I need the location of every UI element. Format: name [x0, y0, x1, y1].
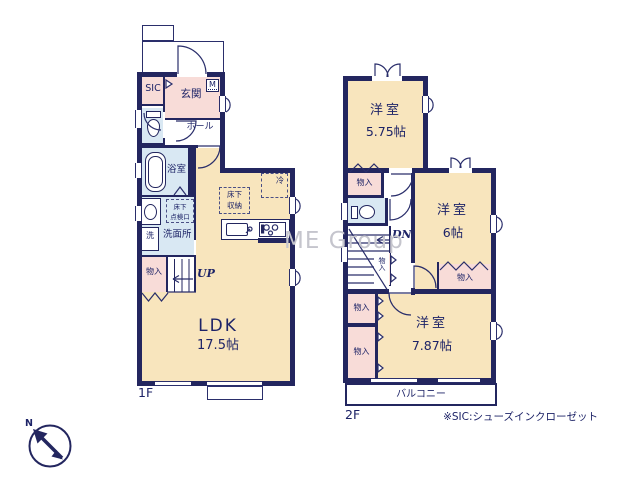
window — [155, 381, 191, 386]
window — [490, 322, 497, 340]
bedroom3-size-label: 7.87帖 — [398, 339, 466, 353]
casement-window — [460, 158, 470, 168]
bedroom2-size-label: 6帖 — [430, 226, 476, 240]
porch-steps — [142, 25, 174, 41]
bedroom3-name-label: 洋室 — [401, 317, 463, 332]
wall — [166, 257, 168, 292]
casement-window — [296, 199, 300, 213]
underfloor-hatch-label: 床下 — [167, 201, 193, 211]
window — [372, 76, 402, 81]
room-bedroom3 — [378, 294, 491, 378]
toilet-icon — [359, 205, 375, 219]
bath-label: 浴室 — [167, 165, 186, 176]
underfloor-hatch-label: 点検口 — [167, 211, 193, 221]
sic-note: ※SIC:シューズインクローゼット — [430, 411, 598, 423]
wall — [343, 195, 384, 198]
door-arc — [390, 199, 411, 220]
wall — [411, 289, 496, 294]
door-gap — [163, 112, 165, 138]
stairs-up-label: UP — [197, 268, 215, 281]
wall — [137, 104, 165, 106]
ldk-name-label: LDK — [196, 317, 240, 337]
wall — [381, 173, 384, 196]
balcony-label: バルコニー — [385, 389, 457, 401]
window — [135, 163, 142, 178]
casement-window — [429, 98, 433, 112]
wall — [343, 223, 388, 226]
toilet-icon — [146, 111, 161, 118]
wall — [375, 293, 378, 378]
window — [422, 96, 429, 113]
stove-icon — [259, 222, 286, 237]
window — [341, 203, 348, 220]
closet-label: 物入 — [378, 257, 386, 271]
fridge-label: 冷 — [276, 176, 284, 185]
underfloor-storage: 床下 収納 — [219, 187, 250, 214]
bathtub-icon — [148, 156, 163, 188]
window — [207, 381, 262, 386]
hall-label: ホール — [178, 122, 222, 132]
wall — [194, 257, 196, 292]
terrace-step — [207, 386, 263, 400]
door-arc — [391, 174, 413, 196]
compass-north-label: N — [25, 419, 33, 430]
toilet-icon — [351, 206, 358, 219]
window — [135, 110, 142, 128]
underfloor-hatch: 床下 点検口 — [166, 199, 194, 223]
entrance-door-gap — [177, 72, 207, 77]
bedroom1-size-label: 5.75帖 — [352, 125, 420, 139]
floor2-label: 2F — [345, 408, 360, 422]
wall — [385, 198, 388, 225]
closet-label: 物入 — [439, 273, 491, 282]
door-gap — [194, 240, 196, 255]
laundry-label: 洗 — [142, 231, 158, 240]
window — [289, 197, 296, 214]
kitchen-sink — [226, 223, 248, 236]
room-ldk — [142, 292, 196, 381]
floor1-label: 1F — [138, 386, 153, 400]
closet-label: 物入 — [348, 178, 381, 187]
wall — [188, 148, 196, 197]
casement-window — [451, 158, 461, 168]
window — [490, 215, 497, 233]
ldk-size-label: 17.5帖 — [188, 339, 248, 354]
fridge-space: 冷 — [261, 173, 288, 198]
closet-label: 物入 — [348, 347, 375, 356]
door-mark — [391, 256, 396, 282]
window — [449, 168, 472, 173]
bedroom1-name-label: 洋室 — [355, 104, 417, 119]
sic-label: SIC — [143, 84, 163, 95]
closet-label: 物入 — [348, 303, 375, 312]
casement-window — [226, 98, 230, 112]
window — [219, 96, 226, 112]
wall — [411, 173, 415, 263]
washbasin-icon — [144, 204, 157, 220]
window — [289, 269, 296, 286]
wall — [491, 168, 496, 383]
wall — [163, 77, 165, 106]
closet-label: 物入 — [142, 267, 166, 276]
watermark: ME Group — [284, 228, 404, 254]
floor-plan-canvas: 冷 床下 収納 床下 点検口 M — [0, 0, 640, 480]
bedroom2-name-label: 洋室 — [422, 204, 484, 219]
wall — [343, 323, 375, 327]
window — [438, 378, 480, 383]
compass-icon — [30, 426, 71, 467]
underfloor-storage-label: 収納 — [220, 200, 249, 211]
wall — [423, 76, 428, 173]
genkan-label: 玄関 — [166, 88, 216, 100]
casement-window — [497, 324, 502, 339]
washroom-label: 洗面所 — [163, 230, 192, 241]
stairs-1f — [167, 259, 194, 292]
wall — [343, 289, 389, 294]
porch — [142, 41, 224, 74]
wall — [220, 168, 295, 173]
underfloor-storage-label: 床下 — [220, 189, 249, 200]
window — [135, 206, 142, 221]
genkan-step-edge — [165, 118, 222, 120]
casement-window — [497, 217, 502, 232]
wall — [137, 195, 196, 197]
casement-window — [296, 271, 300, 285]
window — [371, 378, 417, 383]
